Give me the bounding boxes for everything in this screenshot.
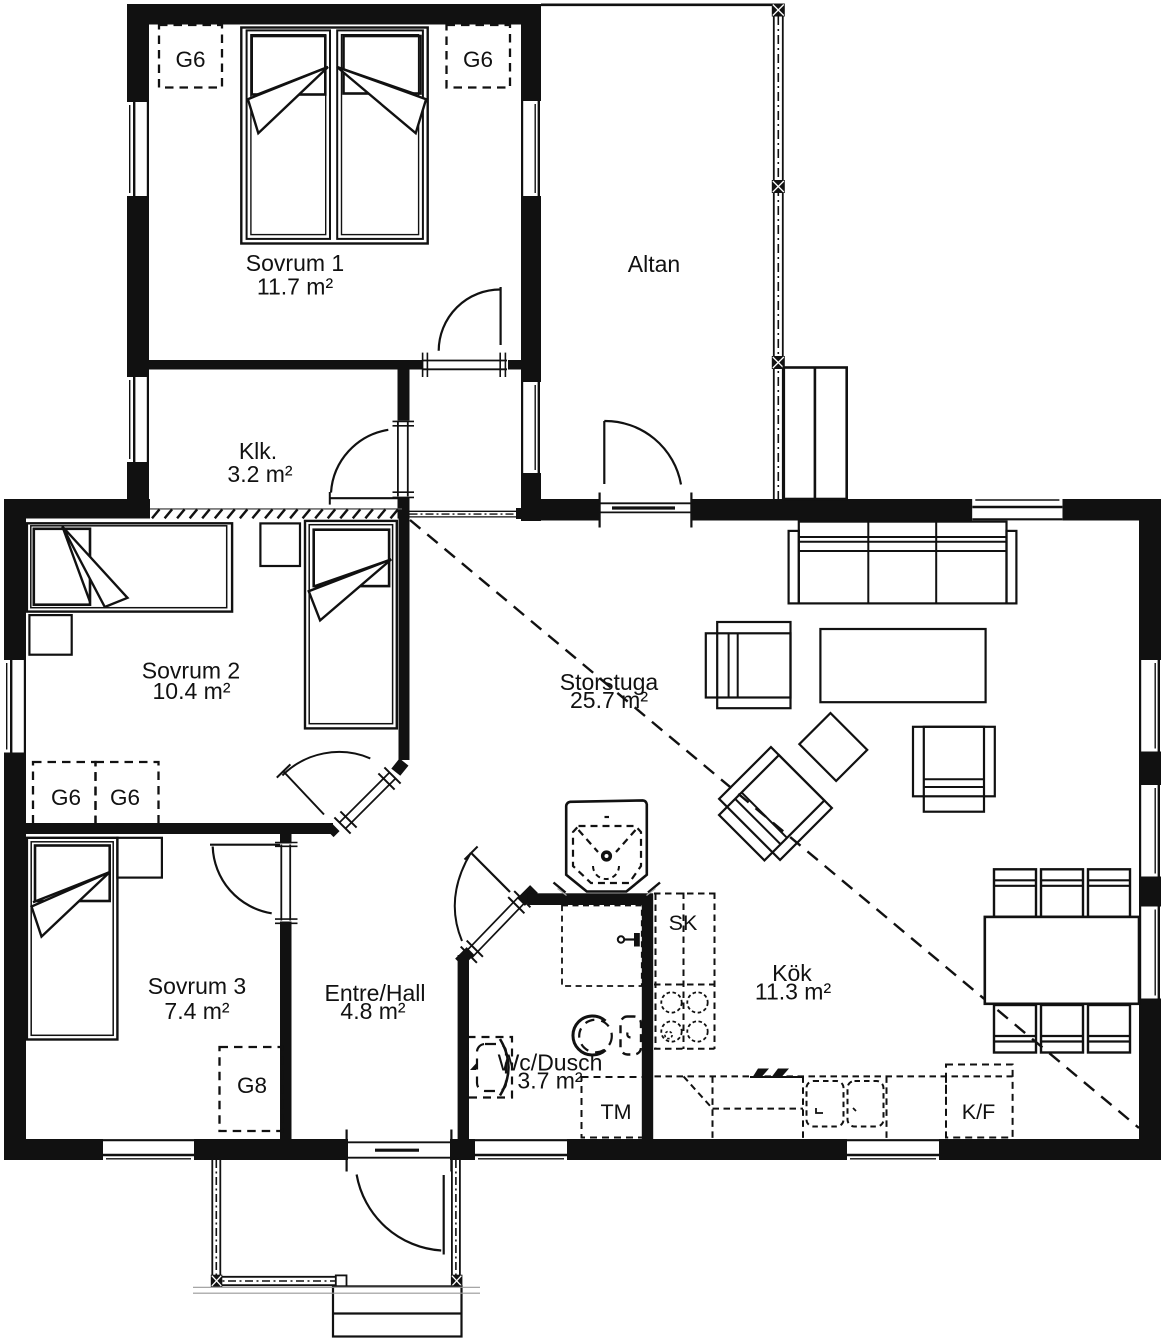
- svg-text:G6: G6: [51, 785, 81, 810]
- svg-text:7.4 m²: 7.4 m²: [164, 998, 230, 1024]
- svg-text:11.7 m²: 11.7 m²: [257, 274, 334, 300]
- svg-text:Sovrum 1: Sovrum 1: [246, 250, 344, 276]
- svg-text:G6: G6: [110, 785, 140, 810]
- svg-text:11.3 m²: 11.3 m²: [755, 979, 832, 1005]
- svg-text:3.2 m²: 3.2 m²: [227, 461, 293, 487]
- svg-text:10.4 m²: 10.4 m²: [153, 678, 231, 704]
- svg-text:25.7 m²: 25.7 m²: [570, 687, 648, 713]
- svg-text:3.7 m²: 3.7 m²: [517, 1068, 583, 1094]
- svg-text:Altan: Altan: [628, 251, 680, 277]
- svg-text:SK: SK: [669, 911, 698, 935]
- svg-text:TM: TM: [600, 1100, 631, 1124]
- svg-text:Sovrum 3: Sovrum 3: [148, 973, 246, 999]
- svg-text:4.8 m²: 4.8 m²: [340, 998, 406, 1024]
- svg-text:K/F: K/F: [962, 1100, 995, 1124]
- svg-text:G6: G6: [463, 47, 493, 72]
- svg-text:G8: G8: [237, 1073, 267, 1098]
- svg-text:G6: G6: [175, 47, 205, 72]
